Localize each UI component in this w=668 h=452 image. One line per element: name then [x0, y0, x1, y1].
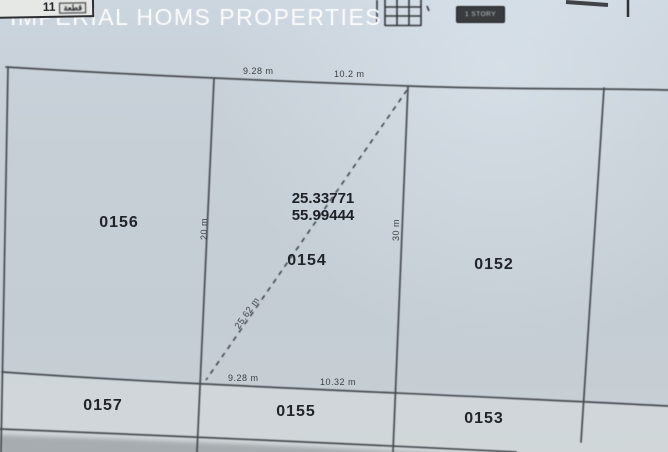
plot-label-0157: 0157 — [75, 397, 131, 415]
dimension-left-side: 20 m — [199, 211, 209, 247]
plot-label-0153: 0153 — [456, 410, 512, 428]
plot-label-0154: 0154 — [279, 252, 335, 270]
story-badge: 1 STORY — [456, 6, 505, 23]
corner-plot-number: 11 — [43, 0, 56, 14]
dimension-bottom-right: 10.32 m — [320, 377, 356, 387]
corner-arabic-label: قطعة — [59, 2, 86, 13]
dimension-middle-side: 30 m — [391, 212, 401, 248]
gps-longitude: 55.99444 — [276, 207, 370, 224]
dimension-top-right: 10.2 m — [334, 69, 365, 79]
plot-label-0156: 0156 — [91, 214, 147, 232]
gps-coordinates: 25.33771 55.99444 — [276, 190, 370, 224]
top-right-marks — [566, 0, 628, 17]
dimension-bottom-left: 9.28 m — [228, 373, 259, 383]
gps-latitude: 25.33771 — [276, 190, 370, 207]
plot-label-0155: 0155 — [268, 403, 324, 421]
corner-stamp: 11 قطعة — [0, 0, 94, 19]
dimension-top-left: 9.28 m — [243, 66, 274, 76]
plot-label-0152: 0152 — [466, 256, 522, 274]
grid-icon — [377, 0, 429, 26]
site-plan-screenshot: IMPERIAL HOMS PROPERTIES 11 قطعة 1 STORY… — [0, 0, 668, 452]
divider-0152-right — [581, 88, 604, 442]
